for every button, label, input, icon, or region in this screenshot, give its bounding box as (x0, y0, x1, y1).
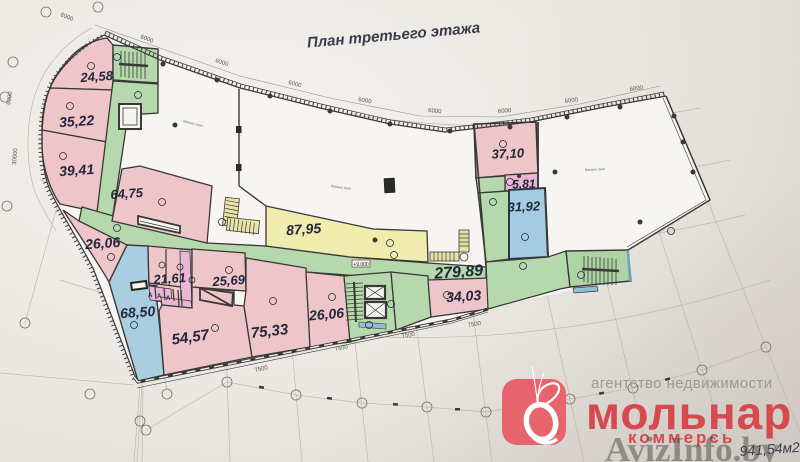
svg-text:31,92: 31,92 (507, 198, 541, 214)
svg-text:24,58: 24,58 (79, 68, 114, 85)
svg-text:A: A (166, 296, 171, 302)
svg-text:34,03: 34,03 (446, 287, 482, 305)
svg-text:279,89: 279,89 (433, 262, 484, 282)
svg-text:5,81: 5,81 (512, 177, 536, 192)
svg-text:25,69: 25,69 (211, 272, 246, 289)
svg-text:35,22: 35,22 (59, 112, 95, 130)
svg-text:64,75: 64,75 (110, 185, 144, 202)
svg-text:6000: 6000 (428, 108, 442, 115)
svg-text:37,10: 37,10 (491, 145, 525, 161)
svg-text:агентство недвижимости: агентство недвижимости (591, 375, 773, 392)
svg-text:68,50: 68,50 (120, 303, 156, 321)
svg-text:26,06: 26,06 (307, 305, 345, 324)
svg-text:A: A (157, 294, 162, 300)
svg-text:6000: 6000 (498, 108, 512, 115)
svg-text:+9.000: +9.000 (353, 262, 369, 268)
svg-text:26,06: 26,06 (84, 234, 121, 252)
svg-text:21,61: 21,61 (152, 270, 187, 287)
svg-text:39,41: 39,41 (59, 161, 95, 179)
svg-text:87,95: 87,95 (286, 220, 322, 238)
svg-text:A: A (148, 293, 153, 299)
